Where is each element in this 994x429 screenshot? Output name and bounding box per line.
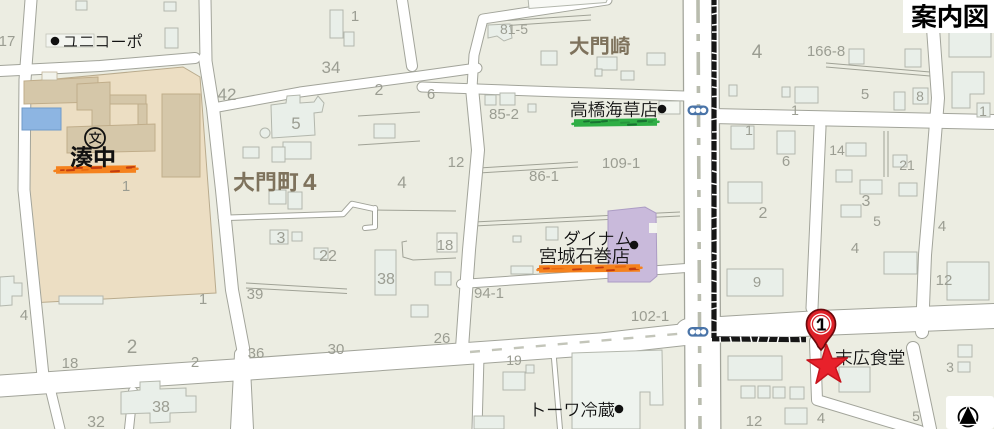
svg-text:109-1: 109-1 [602, 155, 640, 172]
svg-text:14: 14 [829, 142, 845, 158]
svg-text:9: 9 [753, 274, 761, 291]
svg-text:4: 4 [938, 218, 946, 235]
svg-text:5: 5 [873, 213, 881, 229]
svg-text:4: 4 [851, 240, 859, 257]
svg-text:18: 18 [437, 237, 454, 254]
svg-text:2: 2 [759, 205, 768, 222]
svg-text:85-2: 85-2 [489, 106, 519, 123]
svg-text:30: 30 [328, 341, 345, 358]
svg-text:3: 3 [862, 193, 871, 210]
svg-text:166-8: 166-8 [807, 43, 845, 60]
svg-text:17: 17 [0, 33, 15, 50]
svg-text:5: 5 [861, 86, 869, 103]
svg-text:3: 3 [277, 230, 286, 247]
svg-text:12: 12 [746, 413, 763, 429]
svg-text:32: 32 [87, 414, 105, 429]
svg-text:2: 2 [191, 354, 199, 371]
svg-text:1: 1 [351, 8, 359, 25]
svg-text:5: 5 [291, 114, 300, 133]
svg-text:4: 4 [397, 173, 406, 192]
svg-text:102-1: 102-1 [631, 308, 669, 325]
svg-text:34: 34 [322, 58, 341, 77]
svg-text:4: 4 [817, 410, 825, 427]
svg-text:1: 1 [199, 291, 207, 308]
svg-text:94-1: 94-1 [474, 285, 504, 302]
svg-text:38: 38 [152, 399, 170, 416]
svg-text:38: 38 [377, 271, 395, 288]
svg-text:4: 4 [20, 307, 28, 324]
svg-text:21: 21 [899, 157, 915, 173]
svg-text:39: 39 [247, 286, 264, 303]
svg-text:19: 19 [506, 352, 522, 368]
svg-text:1: 1 [979, 103, 987, 119]
svg-text:81-5: 81-5 [500, 21, 528, 37]
svg-text:8: 8 [916, 88, 924, 104]
svg-text:2: 2 [375, 82, 384, 99]
svg-text:86-1: 86-1 [529, 168, 559, 185]
svg-text:6: 6 [427, 86, 435, 103]
svg-text:26: 26 [434, 330, 451, 347]
svg-text:1: 1 [122, 178, 130, 195]
svg-text:6: 6 [782, 153, 790, 170]
svg-text:4: 4 [752, 42, 763, 63]
svg-text:5: 5 [912, 408, 920, 424]
svg-text:18: 18 [62, 355, 79, 372]
svg-text:42: 42 [218, 85, 237, 104]
svg-text:22: 22 [319, 248, 337, 265]
svg-text:12: 12 [936, 272, 953, 289]
svg-text:12: 12 [448, 154, 465, 171]
svg-text:1: 1 [791, 102, 799, 118]
svg-text:36: 36 [248, 345, 265, 362]
svg-text:2: 2 [127, 337, 138, 358]
svg-text:3: 3 [946, 359, 954, 375]
svg-text:1: 1 [745, 122, 753, 138]
